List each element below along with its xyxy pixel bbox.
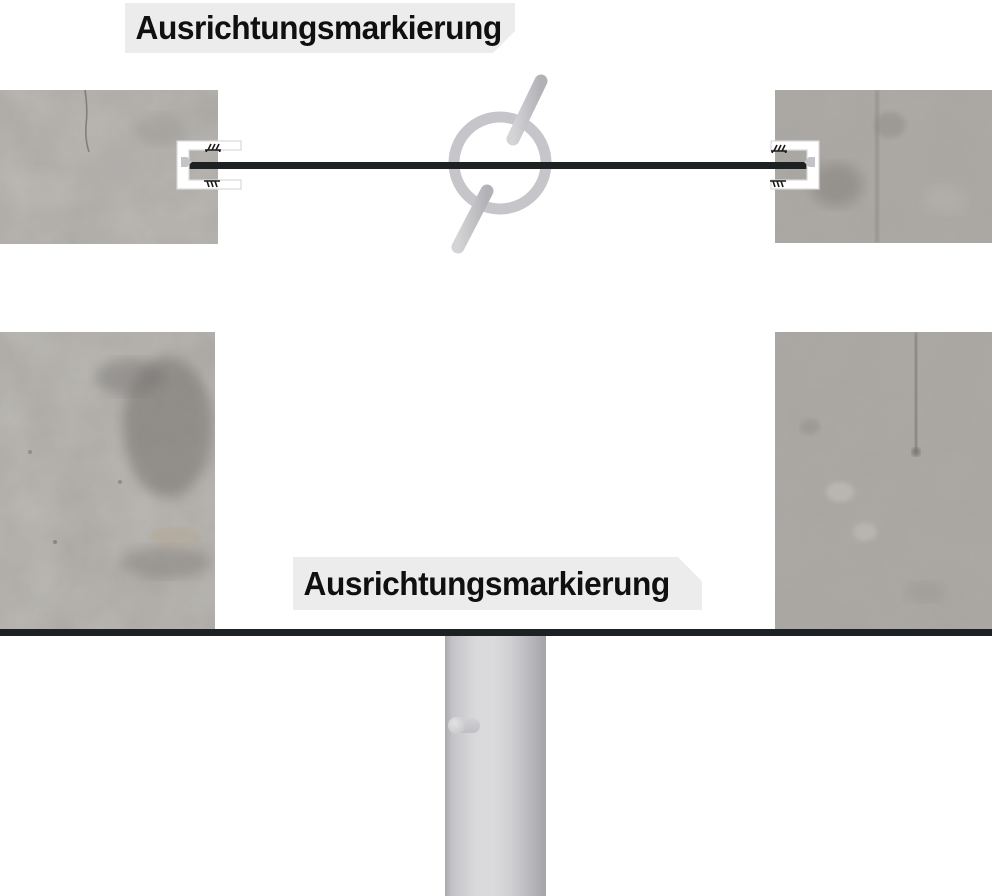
concrete-block-bottom-right bbox=[775, 332, 992, 630]
scribed-mark-icon bbox=[204, 142, 223, 152]
concrete-block-bottom-left bbox=[0, 332, 215, 630]
arrow-nib-icon bbox=[804, 157, 815, 167]
illustration-canvas: Ausrichtungsmarkierung bbox=[0, 0, 992, 896]
callout-bottom-text: Ausrichtungsmarkierung bbox=[293, 565, 670, 603]
arrow-nib-icon bbox=[181, 157, 192, 167]
alignment-line-bottom bbox=[0, 629, 992, 636]
callout-top-text: Ausrichtungsmarkierung bbox=[125, 9, 502, 47]
callout-bottom: Ausrichtungsmarkierung bbox=[293, 557, 702, 610]
callout-top: Ausrichtungsmarkierung bbox=[125, 3, 515, 53]
pole bbox=[445, 631, 546, 896]
scribed-mark-icon bbox=[203, 178, 222, 188]
scribed-mark-icon bbox=[769, 178, 788, 188]
scribed-mark-icon bbox=[770, 143, 789, 153]
alignment-line-top bbox=[186, 162, 807, 169]
pole-pin-head bbox=[448, 717, 465, 734]
